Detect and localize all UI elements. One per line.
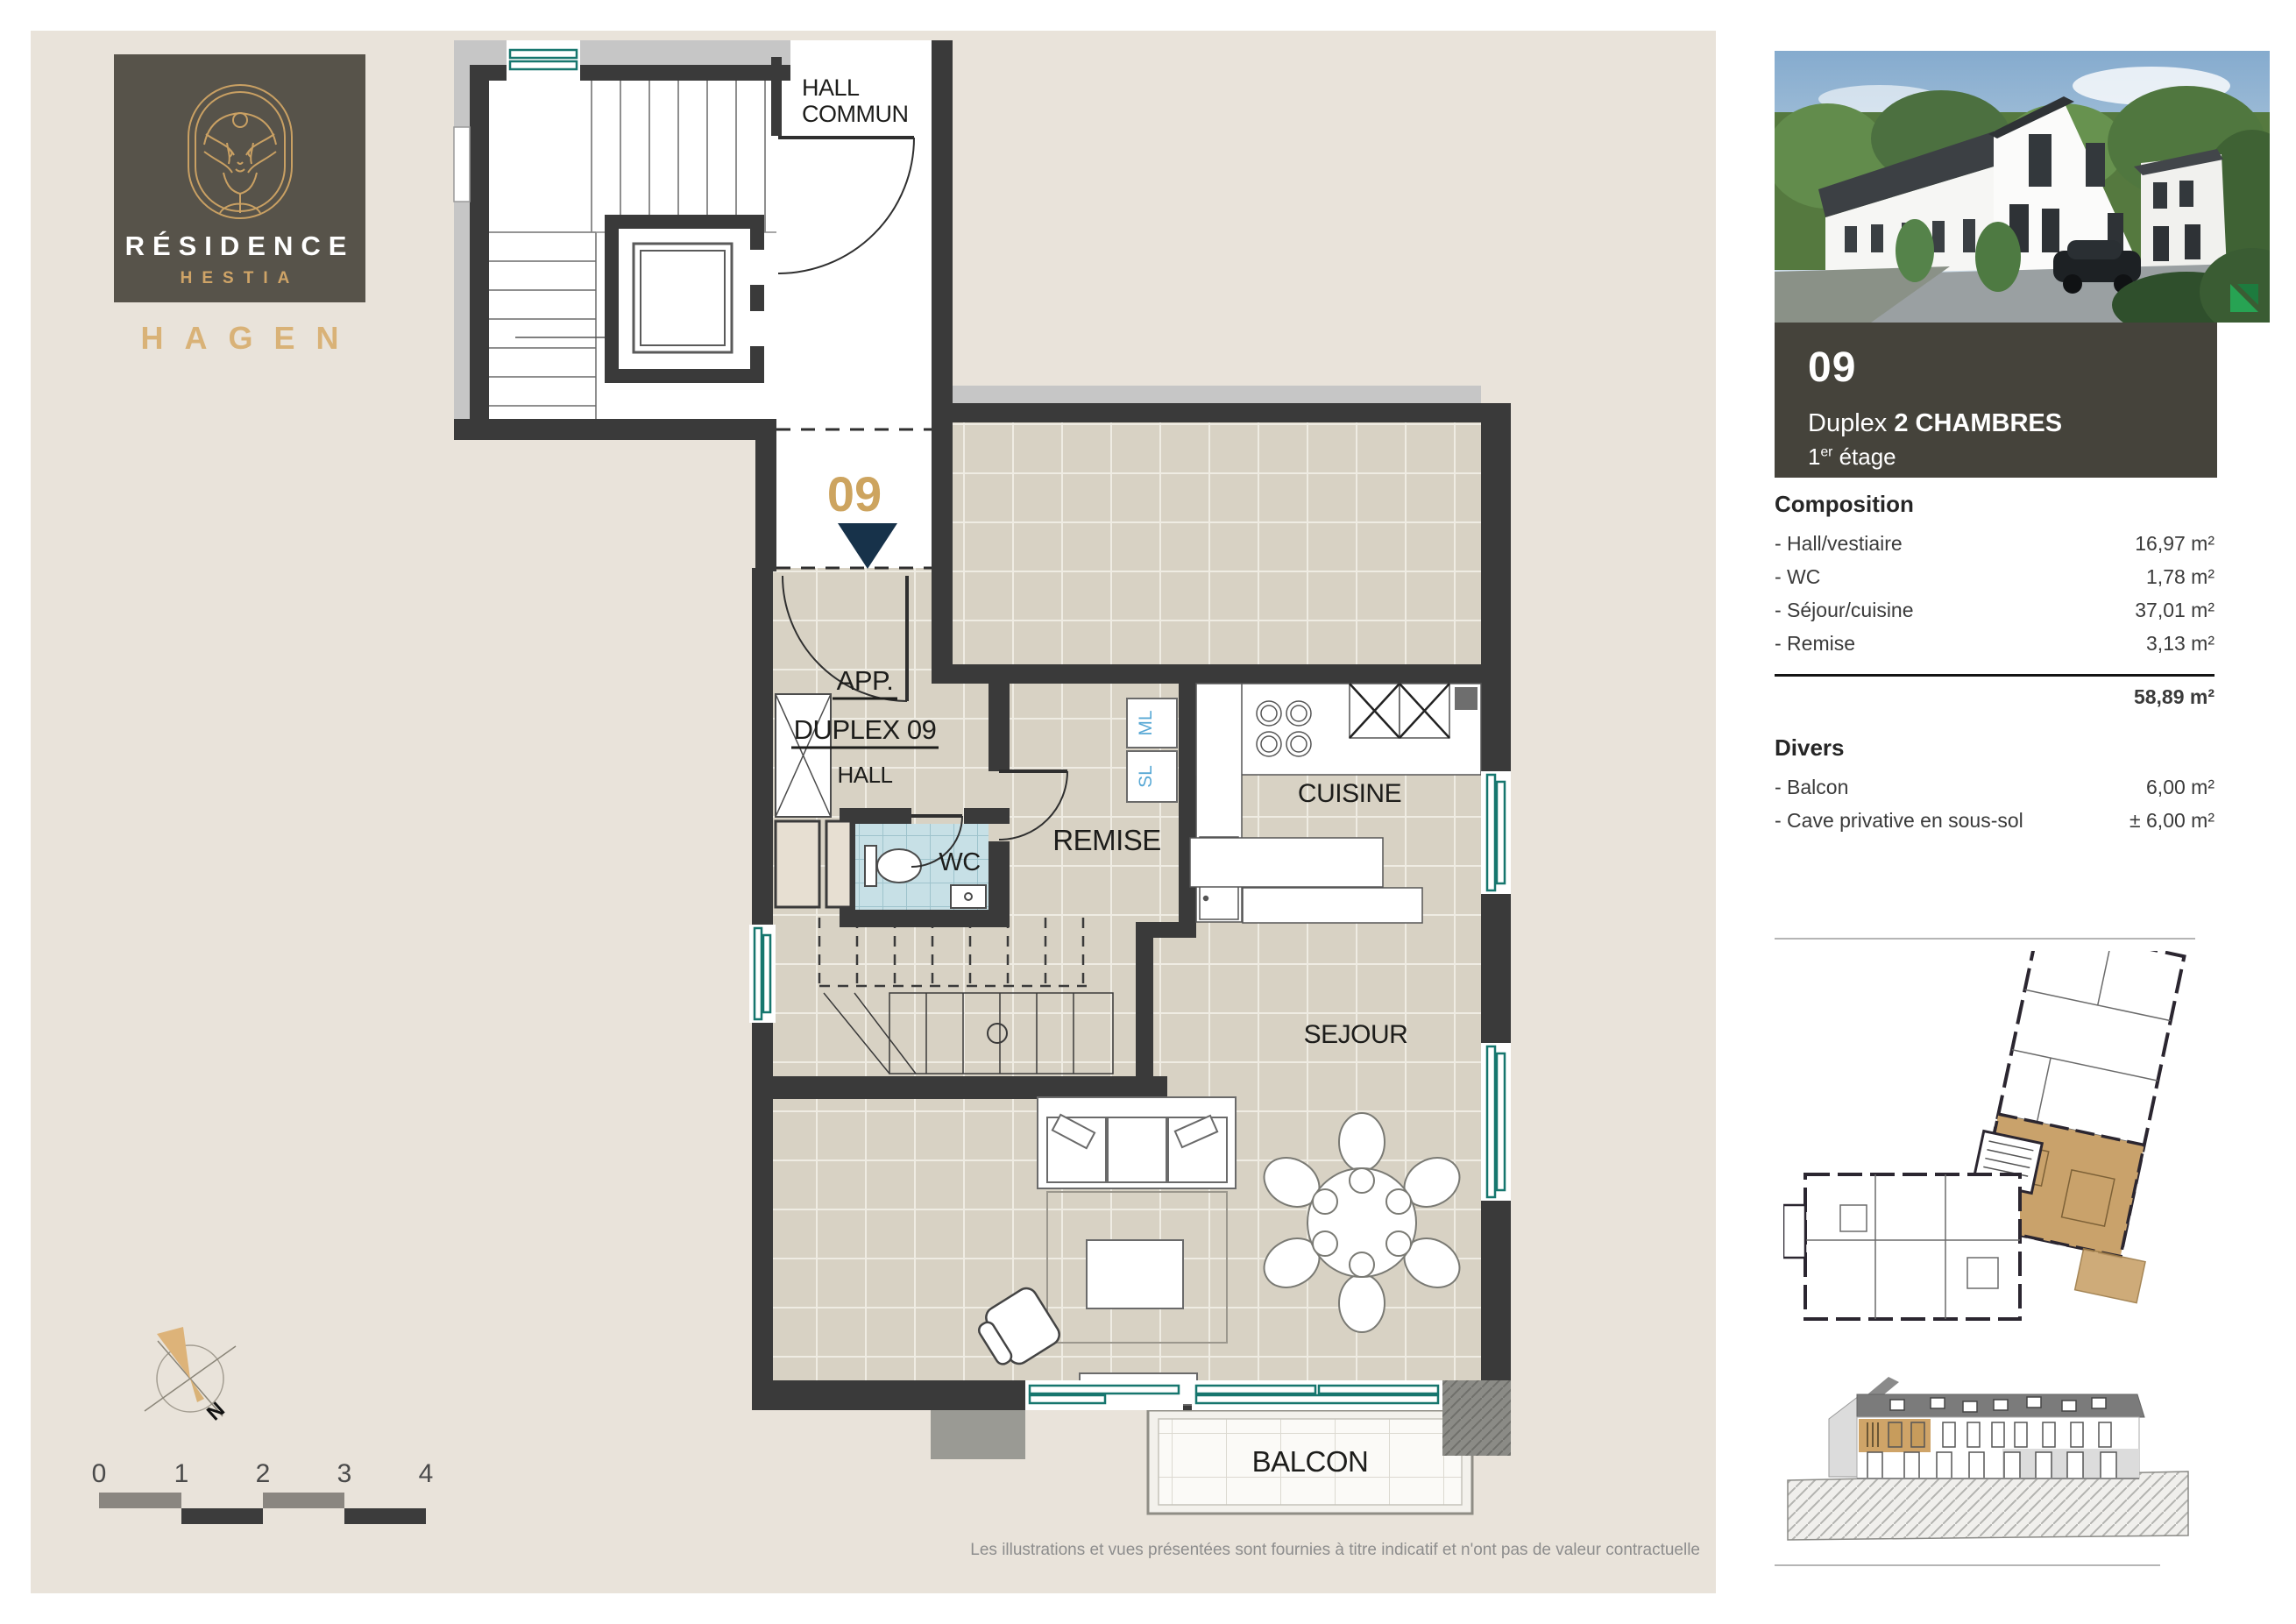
label-app-2: DUPLEX 09 [794, 714, 937, 745]
scale-segment [181, 1508, 263, 1524]
overview-mini-plan [1783, 951, 2222, 1337]
label-hall-commun-1: HALL [802, 74, 860, 101]
label-wc: WC [939, 848, 980, 876]
scale-tick: 1 [164, 1459, 199, 1489]
scale-tick: 0 [81, 1459, 117, 1489]
scale-segment [263, 1493, 344, 1508]
unit-number: 09 [1808, 344, 2217, 392]
coffee-table [1087, 1240, 1183, 1308]
label-app-1: APP. [837, 665, 894, 696]
composition-row: - Remise3,13 m² [1775, 627, 2215, 660]
divider [1775, 938, 2195, 940]
scale-tick: 3 [327, 1459, 362, 1489]
window-stairwell-top [507, 40, 580, 81]
divider [1775, 1564, 2160, 1566]
compass: N [127, 1306, 294, 1464]
residence-logo: RÉSIDENCE HESTIA [114, 54, 365, 302]
divers-section: Divers - Balcon6,00 m² - Cave privative … [1775, 734, 2215, 837]
unit-floor: 1er étage [1808, 443, 2217, 471]
dryer-label: SL [1136, 765, 1156, 788]
composition-row: - Hall/vestiaire16,97 m² [1775, 527, 2215, 560]
sofa [1038, 1097, 1236, 1188]
logo-city-text: HAGEN [114, 320, 365, 357]
washer-label: ML [1136, 710, 1156, 735]
compass-north-label: N [202, 1398, 230, 1426]
composition-section: Composition - Hall/vestiaire16,97 m² - W… [1775, 491, 2215, 709]
slider-balcony [1025, 1380, 1183, 1410]
window-cuisine-right [1481, 771, 1511, 894]
label-cuisine: CUISINE [1298, 779, 1401, 808]
elevation-ground [1788, 1472, 2188, 1540]
unit-type: Duplex 2 CHAMBRES [1808, 409, 2217, 438]
building-elevation [1783, 1365, 2195, 1566]
divers-row: - Cave privative en sous-sol± 6,00 m² [1775, 804, 2215, 837]
logo-residence-text: RÉSIDENCE [125, 230, 355, 262]
composition-row: - WC1,78 m² [1775, 560, 2215, 593]
plan-sheet: ML SL [0, 0, 2296, 1624]
scale-segment [344, 1508, 426, 1524]
composition-row: - Séjour/cuisine37,01 m² [1775, 593, 2215, 627]
window-hall-left [749, 925, 776, 1023]
logo-hestia-text: HESTIA [181, 269, 300, 288]
label-hall: HALL [837, 762, 892, 788]
hestia-emblem-icon [183, 82, 297, 222]
composition-title: Composition [1775, 491, 2215, 518]
hall-wardrobe [776, 694, 831, 817]
washer-dryer: ML SL [1127, 699, 1177, 802]
elevator [605, 215, 764, 383]
scale-tick: 2 [245, 1459, 280, 1489]
tech-shaft-b [826, 821, 851, 907]
tech-shaft-a [776, 821, 819, 907]
composition-total: 58,89 m² [1775, 674, 2215, 709]
scale-bar: 0 1 2 3 4 [83, 1459, 504, 1564]
label-remise: REMISE [1052, 824, 1161, 856]
window-sejour-right [1481, 1043, 1511, 1201]
unit-header: 09 Duplex 2 CHAMBRES 1er étage [1775, 323, 2217, 478]
beige-page: ML SL [31, 31, 1716, 1593]
building-render-photo [1775, 51, 2270, 323]
scale-tick: 4 [408, 1459, 443, 1489]
label-balcon: BALCON [1252, 1445, 1369, 1478]
unit-marker-label: 09 [827, 466, 882, 521]
disclaimer: Les illustrations et vues présentées son… [819, 1541, 1700, 1560]
divers-title: Divers [1775, 734, 2215, 762]
neighbor-floor [953, 422, 1481, 664]
window-sejour-bottom [1192, 1380, 1442, 1410]
divers-row: - Balcon6,00 m² [1775, 770, 2215, 804]
label-sejour: SEJOUR [1304, 1020, 1408, 1049]
label-hall-commun-2: COMMUN [802, 101, 908, 127]
scale-segment [99, 1493, 181, 1508]
wc-sink-icon [951, 885, 986, 908]
